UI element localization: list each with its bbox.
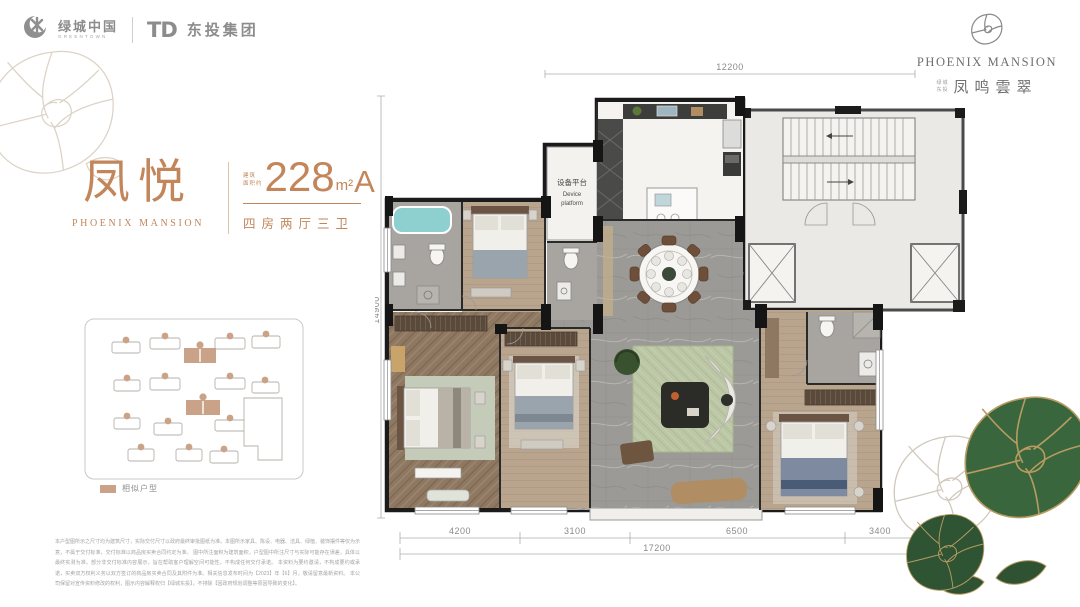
suite-closet [765,318,779,378]
title-divider [228,162,229,234]
area-prefix-line2: 面积约 [243,181,263,189]
svg-text:Device: Device [563,192,582,198]
dimension-top: 12200 [545,62,915,78]
bed-bench [415,468,461,478]
brand-rose-icon [970,12,1004,51]
unit-area-unit: m² [336,177,354,194]
armchair [614,349,640,375]
area-underline [243,203,361,204]
unit-area: 228 [265,158,335,196]
master-wardrobe [395,316,487,331]
unit-title-block: 凤悦 PHOENIX MANSION 建筑 面积约 228 m² A 四房两厅三… [62,158,375,234]
bathroom-3 [807,312,880,384]
greentown-name-cn: 绿城中国 [58,20,118,33]
unit-type: A [354,168,375,196]
unit-name-en: PHOENIX MANSION [72,218,204,229]
disclaimer: 本户型图所示之尺寸均为建筑尺寸，实际交付尺寸以政府最终审批图纸为准。本图所示家具… [55,537,360,590]
site-plan [84,318,304,485]
bedroom-suite [760,310,880,510]
site-plan-legend: 相似户型 [100,483,158,494]
svg-text:platform: platform [561,201,583,207]
unit-name: 凤悦 [83,158,193,210]
balcony-strip [590,508,762,520]
suite-wardrobe [805,390,877,405]
bedroom-3 [462,202,545,320]
greentown-name-en: GREENTOWN [58,35,118,40]
dining-room [597,220,743,330]
dimension-bottom: 4200 3100 6500 3400 17200 [400,526,915,560]
svg-text:3100: 3100 [564,526,586,536]
staircase [783,118,915,200]
logo-divider [132,17,133,43]
bedroom-2-bed [513,356,575,429]
dimension-left: 14900 [375,96,385,518]
svg-text:设备平台: 设备平台 [557,177,587,187]
elevator-right [911,244,959,302]
elevator-left [749,244,795,302]
svg-text:6500: 6500 [726,526,748,536]
bedroom-2 [500,328,590,508]
area-prefix-line1: 建筑 [243,173,263,181]
greentown-logo-icon [22,14,48,45]
device-platform: 设备平台 Device platform [547,147,597,240]
unit-layout: 四房两厅三卫 [243,213,375,232]
suite-bed [779,414,849,496]
dongtou-name-cn: 东投集团 [187,19,259,40]
dongtou-logo-icon: TD [147,18,177,42]
coffee-table [661,382,709,428]
rose-illustration-bottom-right [880,382,1080,607]
header-logos: 绿城中国 GREENTOWN TD 东投集团 [22,14,259,45]
master-desk-chair [391,346,405,372]
master-bed [397,386,470,450]
core-area [741,106,967,312]
side-table [721,394,733,406]
bathroom-2 [547,242,597,320]
bathroom-master [389,202,462,310]
svg-text:4200: 4200 [449,526,471,536]
svg-text:14900: 14900 [375,296,381,324]
svg-text:17200: 17200 [643,543,671,553]
ottoman [620,440,655,465]
legend-swatch [100,485,116,493]
green-rose-large [965,397,1080,517]
dining-table [630,236,708,312]
legend-label: 相似户型 [122,483,158,494]
svg-text:12200: 12200 [716,62,744,72]
